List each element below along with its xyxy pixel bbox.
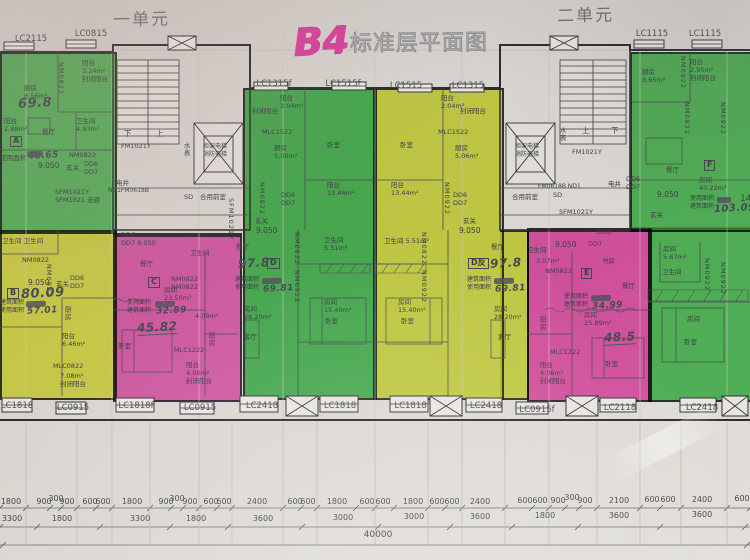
code-label: SD	[553, 191, 562, 199]
code-label: NM0822	[57, 62, 65, 95]
code-label: SFM1021Y	[559, 208, 593, 216]
room-label: 7.08m² 封闭阳台	[60, 372, 86, 388]
room-label: 阳台 6.46m²	[62, 332, 85, 348]
floorplan-photo: B4 标准层平面图 一单元 二单元 LC2115LC0815LC1315fLC1…	[0, 0, 750, 560]
room-label: 阳台 4.06m² 封闭阳台	[540, 361, 566, 385]
code-label: NM0922	[443, 182, 451, 215]
room-label: 厨房 8.65m²	[642, 68, 665, 84]
room-label: 阳台 3.24m² 封闭阳台	[82, 59, 108, 83]
room-label: 阳台 13.44m²	[391, 181, 419, 197]
level-label: 9.050	[459, 226, 480, 235]
room-label: 餐厅	[666, 166, 679, 174]
code-label: NM0822	[45, 264, 53, 297]
room-label: 房间 25.89m²	[584, 311, 612, 327]
room-label: 房间	[687, 315, 700, 323]
room-label: 水表	[558, 127, 566, 142]
room-label: 阳台 4.06m² 封闭阳台	[186, 361, 212, 385]
room-label: 卫生间 4.93m²	[76, 117, 99, 133]
scribble	[27, 151, 43, 158]
code-label: DD6 DD7 9.050	[121, 231, 156, 247]
level-label: 9.050	[38, 161, 59, 170]
code-label: MLC1222	[174, 346, 204, 354]
room-label: 合用前室	[200, 193, 226, 201]
code-label: ND1FM0618B	[108, 187, 149, 195]
scribble	[591, 295, 611, 302]
room-label: 合用前室	[512, 193, 538, 201]
unit-tag: D反	[468, 258, 489, 269]
scribble	[262, 278, 282, 285]
level-label: 9.050	[256, 226, 277, 235]
code-label: FM1021Y	[572, 148, 602, 156]
area-label: 使用面积 建筑面积	[127, 299, 151, 314]
code-label: NM0822	[69, 151, 96, 159]
room-label: 卧室	[401, 317, 414, 325]
room-label: 玄关	[255, 217, 268, 225]
unit-tag: A	[10, 136, 22, 147]
level-label: 9.050	[555, 240, 576, 249]
code-label: MLC1522	[262, 128, 292, 136]
room-label: 卫生间	[527, 246, 547, 254]
room-label: 阳台 2.95m² 封闭阳台	[690, 58, 716, 82]
room-label: 厨房 5.06m²	[455, 144, 478, 160]
scribble	[155, 301, 175, 308]
room-label: 卧室	[118, 342, 131, 350]
code-label: DD6 DD7	[626, 175, 640, 191]
unit-tag: E	[581, 268, 592, 279]
room-label: 电井	[608, 180, 621, 188]
code-label: MLC1222	[550, 348, 580, 356]
level-label: 9.050	[657, 190, 678, 199]
area-label: 建筑面积 使用面积	[467, 276, 491, 291]
unit-tag: B	[7, 288, 19, 299]
area-value: 3.07m²	[536, 257, 559, 265]
code-label: NM0922	[703, 258, 711, 291]
room-label: 餐厅	[622, 282, 635, 290]
room-label: 水表	[182, 142, 190, 157]
area-label: 使用面积 建筑面积	[690, 195, 714, 210]
code-label: NM0822	[258, 182, 266, 215]
code-label: DD7	[588, 240, 602, 248]
room-label: 玄关	[463, 217, 476, 225]
room-label: 餐厅	[491, 243, 504, 251]
code-label: MLC1522	[438, 128, 468, 136]
room-label: 卫生间	[190, 249, 210, 257]
handwritten-area: 97.8	[238, 255, 270, 271]
code-label: NM0822	[293, 232, 301, 265]
stair-direction-label: 上	[156, 129, 164, 138]
handwritten-area: 97.8	[490, 255, 522, 271]
room-label: 房间 28.20m²	[244, 305, 272, 321]
room-label: 玄关	[66, 164, 79, 172]
code-label: NM0822	[22, 256, 49, 264]
code-label: NM0922	[719, 262, 727, 295]
area-label: 使用面积	[0, 154, 26, 162]
stair-direction-label: 上	[582, 126, 590, 135]
code-label: DD6 DD7	[281, 191, 295, 207]
code-label: FM1021Y	[121, 142, 151, 150]
room-label: 餐厅	[42, 128, 55, 136]
room-label: 厨房	[207, 332, 215, 347]
elevator-label: 担架电梯 消防电梯	[515, 143, 539, 158]
room-label: 卧室	[605, 360, 618, 368]
room-label: 餐厅	[236, 243, 249, 251]
room-label: 电井	[116, 179, 129, 187]
area-value: 4.09m²	[195, 312, 218, 320]
unit-tag: D	[267, 258, 280, 269]
room-label: 封闭阳台	[252, 107, 278, 115]
room-label: 阳台 2.88m²	[4, 117, 27, 133]
code-label: DD6 DD7	[84, 160, 98, 176]
code-label: DD6	[597, 228, 611, 236]
code-label: NM0922	[679, 56, 687, 89]
handwritten-area: 80.09	[21, 285, 65, 302]
unit-tag: F	[704, 160, 715, 171]
edge-label: 14	[740, 194, 750, 205]
room-label: 卫生间	[662, 268, 682, 276]
room-label: 餐厅	[140, 260, 153, 268]
room-label: 卧室	[400, 141, 413, 149]
code-label: DD6 DD7	[70, 274, 84, 290]
code-label: NM0822	[420, 232, 428, 265]
room-label: 阳台 2.04m²	[441, 94, 464, 110]
room-label: 阳台 2.04m²	[280, 94, 303, 110]
code-label: FM0618B ND1	[538, 183, 581, 191]
room-label: 房间 28.20m²	[494, 305, 522, 321]
handwritten-area: 48.5	[604, 329, 636, 346]
room-label: 客厅	[498, 333, 511, 341]
handwritten-area: 45.82	[137, 319, 178, 336]
code-label: NM0822	[545, 267, 572, 275]
code-label: NM0822 NM0822	[171, 275, 198, 291]
room-label: 房间 15.40m²	[324, 298, 352, 314]
plan-labels: 厨房 8.56m² 阳台 3.24m² 封闭阳台 NM0822 69.8 阳台 …	[0, 0, 750, 560]
room-label: 卧室	[327, 141, 340, 149]
code-label: NM0822	[683, 102, 691, 135]
room-label: 厨房	[63, 306, 71, 321]
room-label: 卫生间 卫生间	[2, 237, 43, 245]
code-label: NM0922	[719, 102, 727, 135]
code-label: NM0922	[293, 270, 301, 303]
room-label: 客厅	[244, 333, 257, 341]
code-label: SD	[184, 193, 193, 201]
scribble	[494, 278, 514, 285]
handwritten-area: 69.81	[495, 283, 526, 295]
handwritten-area: 69.81	[263, 283, 294, 295]
room-label: 卧室	[684, 338, 697, 346]
handwritten-area: 69.8	[18, 95, 53, 112]
room-label: 房间 15.40m²	[398, 298, 426, 314]
room-label: 书房	[602, 257, 615, 265]
stair-direction-label: 下	[611, 126, 619, 135]
unit-tag: C	[148, 277, 160, 288]
stair-direction-label: 下	[124, 129, 132, 138]
area-label: 建筑面积 使用面积	[235, 276, 259, 291]
code-label: SFM1021Y	[227, 198, 235, 240]
room-label: 玄关	[650, 211, 663, 219]
code-label: DD6 DD7	[453, 191, 467, 207]
code-label: MLC0822	[53, 362, 83, 370]
area-label: 建筑面积 使用面积	[0, 299, 24, 314]
code-label: SFM1021Y SFM1021 走廊	[55, 188, 100, 204]
room-label: 房间 40.22m²	[699, 176, 727, 192]
room-label: 卫生间 5.51m²	[324, 236, 347, 252]
room-label: 厨房	[538, 316, 546, 331]
room-label: 房间 5.67m²	[663, 245, 686, 261]
room-label: 卧室	[325, 317, 338, 325]
elevator-label: 担架电梯 消防电梯	[203, 143, 227, 158]
scribble	[717, 197, 731, 203]
area-label: 使用面积 建筑面积	[564, 293, 588, 308]
scribble	[26, 301, 46, 308]
room-label: 阳台 13.46m²	[327, 181, 355, 197]
room-label: 厨房 5.06m²	[274, 144, 297, 160]
